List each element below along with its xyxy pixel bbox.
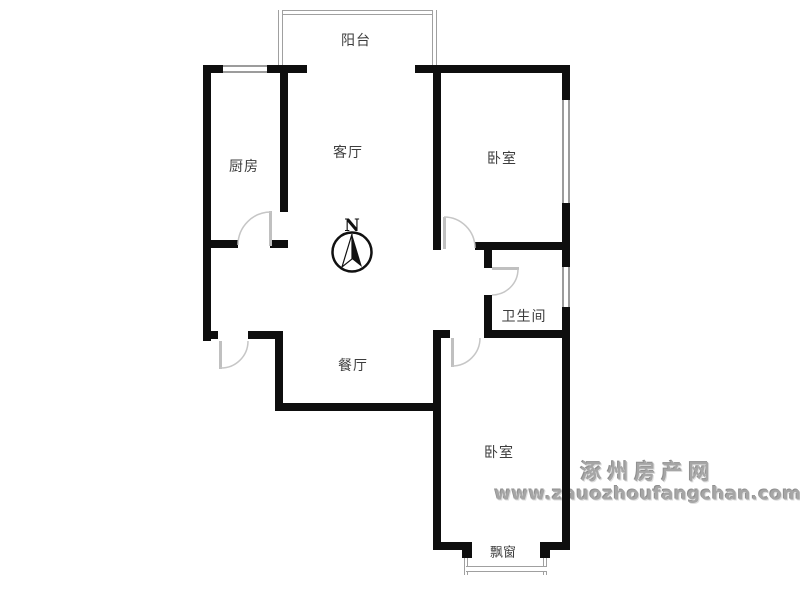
dining-room-label: 餐厅 — [338, 355, 368, 375]
arc-and-compass-layer: N — [0, 0, 800, 600]
bedroom-top-label: 卧室 — [487, 148, 517, 168]
entry-door-arc — [220, 341, 248, 368]
compass-needle-left — [342, 234, 352, 267]
bedroom-bottom-label: 卧室 — [484, 442, 514, 462]
kitchen-label: 厨房 — [229, 156, 259, 176]
kitchen-door-arc — [238, 212, 271, 245]
bathroom-door-arc — [492, 269, 518, 295]
floor-plan: N 阳台 厨房 客厅 卧室 卫生间 餐厅 卧室 飘窗 涿州房产网 www.zhu… — [0, 0, 800, 600]
compass: N — [333, 216, 372, 272]
bedroom-top-door-arc — [444, 217, 475, 248]
compass-north-label: N — [344, 216, 360, 236]
compass-needle-right — [352, 234, 362, 267]
bathroom-label: 卫生间 — [502, 306, 547, 326]
balcony-label: 阳台 — [341, 30, 371, 50]
bay-window-label: 飘窗 — [490, 542, 516, 561]
living-room-label: 客厅 — [333, 142, 363, 162]
bedroom-bottom-door-arc — [452, 338, 480, 366]
